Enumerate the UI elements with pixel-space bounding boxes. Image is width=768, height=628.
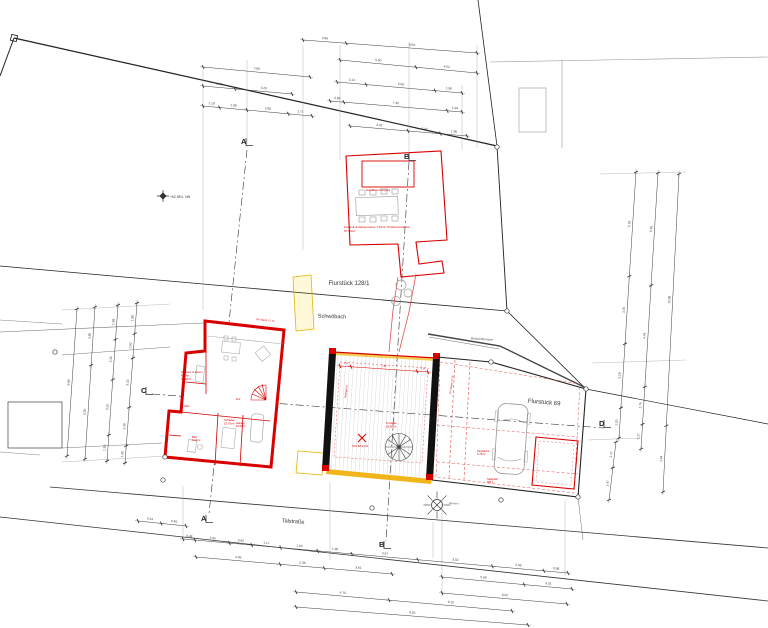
label-room-abstell: Abst. <box>184 404 190 408</box>
dim-value: 3.02 <box>125 379 129 386</box>
dim-value: 1.50 <box>102 444 106 451</box>
yellow-path <box>293 275 314 331</box>
boundary-west <box>0 38 14 76</box>
section-bracket <box>604 420 611 428</box>
parcel-boundaries <box>0 0 768 424</box>
hatch-line <box>419 359 426 478</box>
label-pavilion-note: Kiosk & Außenterrasse 7-Pers. Holzkonstr… <box>344 225 410 233</box>
dim-value: 3.61 <box>355 565 362 570</box>
dim-value: 2.86 <box>322 36 329 40</box>
dimension-chains: 2.868.647.865.004.021.783.201.191.982.98… <box>65 36 681 627</box>
dim-value: 0.98 <box>553 566 560 571</box>
dim-value: 13.08 <box>667 295 671 303</box>
dim-value: 1.17 <box>609 451 614 458</box>
deck-hatch <box>331 354 426 477</box>
dim-value: 1.98 <box>111 318 115 325</box>
dim-value: 0.98 <box>334 96 341 101</box>
street-edge-south <box>0 517 768 601</box>
dim-value: 1.50 <box>128 342 132 349</box>
dim-value: 1.04 <box>452 106 459 111</box>
dim-value: 1.14 <box>343 362 349 365</box>
dim-value: 1.05 <box>120 451 124 458</box>
wall-cap <box>426 474 433 480</box>
dim-value: 3.20 <box>105 404 109 411</box>
dim-value: 1.78 <box>216 82 223 87</box>
hatch-line <box>359 356 366 473</box>
level-cross <box>358 434 366 442</box>
section-bracket <box>206 515 213 523</box>
hatch-line <box>347 355 354 471</box>
dim-value: 1.76 <box>638 402 642 409</box>
boundary-east <box>497 146 507 311</box>
survey-point <box>499 498 503 502</box>
yellow-area <box>296 451 324 475</box>
dim-value: 2.36 <box>299 561 306 566</box>
hatch-line <box>339 354 346 470</box>
dimension-chain: 9.00 <box>439 591 570 606</box>
dim-value: 0.46 <box>171 519 178 524</box>
dim-value: 1.50 <box>614 419 618 426</box>
pavilion-outline <box>346 151 447 277</box>
dim-value: 3.02 <box>452 557 459 562</box>
dim-value: 1.98 <box>451 129 458 134</box>
dim-value: 2.42 <box>421 127 428 132</box>
survey-point <box>576 495 580 499</box>
dimension-chain: 7.86 <box>200 65 313 79</box>
dimension-chain: 5.304.781.761.17 <box>636 170 660 452</box>
hatch-line <box>335 354 342 470</box>
yard <box>432 357 586 497</box>
dim-value: 9.20 <box>409 610 416 614</box>
survey-point <box>370 506 374 510</box>
dim-value: 2.08 <box>515 563 522 568</box>
wall-cap <box>329 348 336 354</box>
hatch-line <box>355 355 362 472</box>
hatch-line <box>411 358 418 476</box>
hatch-line <box>383 357 390 475</box>
dim-value: 9.00 <box>502 593 509 598</box>
dim-value: 8.64 <box>409 42 416 46</box>
label-court-terrasse: Terrasse28.60m² <box>386 421 397 428</box>
section-bracket <box>409 153 416 161</box>
existing-wall-right <box>426 357 440 480</box>
neighbor-outline <box>490 57 768 62</box>
dimension-chain: 1.783.20 <box>200 82 295 96</box>
dim-value: 3.20 <box>260 86 267 91</box>
terrace-line <box>62 347 170 355</box>
dim-value: 5.00 <box>375 58 382 63</box>
dimension-chain: 0.430.46 <box>135 517 189 528</box>
side-street-line <box>0 452 40 455</box>
dim-value: 1.14 <box>420 367 426 370</box>
survey-point <box>489 360 493 364</box>
label-benchmark: +62.98 ü. NN <box>170 195 191 199</box>
dim-value: 7.86 <box>254 66 261 71</box>
hatch-line <box>415 359 422 478</box>
dim-value: 4.70 <box>340 590 347 595</box>
survey-point <box>161 478 165 482</box>
dimension-chain: 1.191.982.981.71 <box>200 101 315 118</box>
dimension-chain: 1.881.503.022.361.05 <box>120 300 139 466</box>
neighbor-garage <box>8 402 62 448</box>
dim-value: 2.98 <box>265 106 272 111</box>
dim-value: 5.30 <box>649 226 653 233</box>
label-wall-note-top: OK Wand +2.75 <box>256 317 275 323</box>
street-edge-north <box>50 487 768 548</box>
section-bracket <box>146 387 153 395</box>
hatch-line <box>407 358 414 476</box>
hatch-line <box>375 356 382 473</box>
wall-cap <box>322 465 329 471</box>
dim-value: 5.69 <box>480 575 487 580</box>
court-dashed-rect <box>334 362 428 463</box>
dim-value: 1.17 <box>263 541 270 546</box>
dim-value: 1.47 <box>605 480 610 487</box>
survey-point <box>495 145 499 149</box>
dim-value: 9.85 <box>66 379 70 386</box>
hatch-line <box>343 355 350 471</box>
hatch-line <box>351 355 358 472</box>
survey-point <box>505 309 509 313</box>
bush-symbol <box>404 289 412 297</box>
dim-value: 1.17 <box>636 433 640 440</box>
boundary-east-upper <box>478 0 497 146</box>
stream-label: Schwöbach <box>318 314 347 321</box>
label-room-garage: Garage18.00m² <box>236 421 246 428</box>
red-path <box>389 274 416 352</box>
dim-value: 6.20 <box>448 600 455 605</box>
dim-value: 1.98 <box>230 103 237 108</box>
survey-point <box>584 387 588 391</box>
dim-value: 2.36 <box>122 423 126 430</box>
boundary-stream <box>0 266 507 311</box>
dim-value: 2.32 <box>109 356 113 363</box>
dim-value: 4.78 <box>642 332 646 339</box>
dim-value: 1.88 <box>130 315 134 322</box>
dim-value: 2.14 <box>349 78 356 83</box>
site-plan-canvas: Flurstück 128/1 Schwöbach Talstraße Flur… <box>0 0 768 628</box>
label-room-schlafen: Schlafen13.75m² <box>224 418 235 425</box>
bank-line <box>0 323 203 332</box>
dim-value: 4.02 <box>444 64 451 69</box>
dimension-chain: 0.987.301.04 <box>327 96 465 114</box>
dim-value: 3.35 <box>622 306 626 313</box>
hatch-line <box>391 357 398 475</box>
dim-value: 0.48 <box>186 534 193 539</box>
driveway-line <box>578 497 583 540</box>
parcel-right-label: Flurstück 69 <box>528 399 562 408</box>
spiral-stair <box>386 434 413 461</box>
dimension-chain: 1.982.323.201.50 <box>102 302 120 464</box>
survey-points <box>53 145 588 510</box>
outdoor-table <box>356 189 399 222</box>
section-bracket <box>384 541 391 549</box>
tree-symbol <box>424 492 451 519</box>
neighbor-building <box>519 88 546 132</box>
pavilion <box>346 151 447 352</box>
dim-value: 1.50 <box>296 544 303 549</box>
label-yard-stellplatz: StellplatzMB 1 <box>487 477 499 484</box>
dim-value: 1.71 <box>297 109 304 114</box>
hatch-line <box>363 356 370 473</box>
dim-value: 0.90 <box>238 538 245 543</box>
hatch-line <box>399 358 406 476</box>
terrace-line <box>62 443 162 448</box>
dim-value: 1.40 <box>209 536 216 541</box>
dim-value: 6.20 <box>82 408 86 415</box>
dim-value: 1.19 <box>208 101 215 106</box>
boundary-right <box>586 389 768 424</box>
benchmark-symbol <box>157 190 169 202</box>
dimension-chain: 2.145.061.98 <box>334 78 465 95</box>
dim-value: 3.44 <box>659 455 663 462</box>
label-level-mark: OK FFB ±0.00 <box>352 445 369 448</box>
survey-point <box>163 455 167 459</box>
dim-value: 5.18 <box>627 220 631 227</box>
label-bestandsmauer: Bestandsmauer <box>471 336 494 342</box>
dim-value: 4.48 <box>235 555 242 560</box>
yard-dashed-dividers <box>437 425 578 474</box>
dimension-chain: 5.004.02 <box>337 58 480 75</box>
dim-value: 3.31 <box>545 581 552 586</box>
dimension-chain: 2.868.64 <box>300 36 480 55</box>
dim-value: 5.06 <box>398 82 405 87</box>
yard-red-building-inner <box>536 441 574 485</box>
dimension-chain: 1.171.47 <box>605 439 618 503</box>
dim-value: 4.32 <box>376 123 383 128</box>
hatch-line <box>367 356 374 473</box>
hatch-line <box>371 356 378 473</box>
side-street-line <box>0 320 62 324</box>
bush-symbol <box>396 280 406 290</box>
dim-value: 0.43 <box>147 517 154 522</box>
dim-value: 1.98 <box>446 86 453 91</box>
label-wall-note-right: OK Mauer +2.35 <box>449 375 455 394</box>
dim-value: 3.18 <box>617 372 621 379</box>
label-room-flur: Flur <box>236 397 241 401</box>
dimension-chain: 5.183.353.181.50 <box>614 169 638 441</box>
parked-car <box>491 403 531 475</box>
neighbor-buildings <box>490 57 768 148</box>
dim-value: 7.30 <box>393 101 400 106</box>
survey-point <box>53 350 57 354</box>
main-labels: Flurstück 128/1 Schwöbach Talstraße Flur… <box>282 281 562 526</box>
label-pavilion-title: Geplante Pergola <box>366 188 390 192</box>
dim-value: 6.85 <box>382 364 388 367</box>
street-label: Talstraße <box>282 518 305 526</box>
new-house <box>165 321 284 467</box>
pavilion-roof <box>362 161 414 187</box>
label-yard-kies: Kiesfläche5.75m² <box>477 449 490 456</box>
dim-value: 2.67 <box>382 551 389 556</box>
dimension-chain: 1.146.851.14 <box>337 362 431 374</box>
dim-value: 3.85 <box>87 332 91 339</box>
parcel-upper-label: Flurstück 128/1 <box>328 281 370 287</box>
dimension-chain: 4.482.363.61 <box>193 555 395 576</box>
dimension-chain: 13.083.44 <box>659 171 681 495</box>
dim-value: 1.38 <box>332 547 339 552</box>
hatch-line <box>379 357 386 474</box>
witness-lines <box>62 42 686 596</box>
yard-outline <box>432 357 586 497</box>
existing-wall-left <box>322 352 336 471</box>
site-plan-drawing: Flurstück 128/1 Schwöbach Talstraße Flur… <box>0 0 768 628</box>
dimension-chain: 9.20 <box>293 605 531 627</box>
section-line-b <box>386 162 409 541</box>
